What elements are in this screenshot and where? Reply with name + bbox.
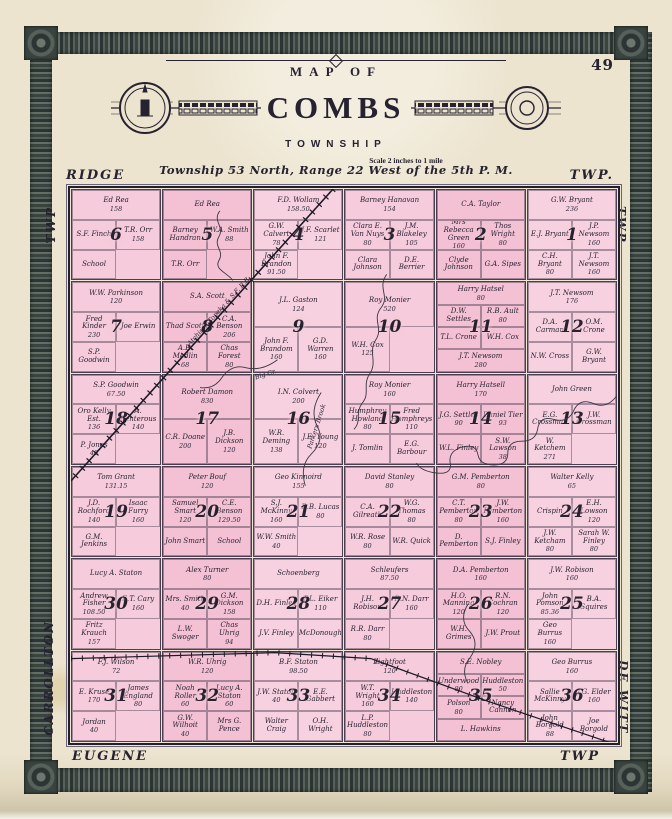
parcel: G.D. Warren160 bbox=[298, 327, 342, 372]
map-section-7[interactable]: W.W. Parkinson120Fred Kinder230Joe Erwin… bbox=[71, 281, 161, 372]
parcel: Geo Burrus160 bbox=[528, 652, 616, 682]
parcel: Thos Wright80 bbox=[481, 220, 525, 250]
parcel: B.F. Staton98.50 bbox=[254, 652, 342, 682]
parcel: John Pomson85.36 bbox=[528, 589, 572, 619]
parcel-group: J.W. Robison160John Pomson85.36B.A. Squi… bbox=[528, 559, 616, 648]
parcel-owner-name: J.T. Newsom bbox=[550, 290, 593, 298]
parcel-acreage: 120 bbox=[179, 517, 191, 524]
map-section-19[interactable]: Tom Grant131.15J.D. Rochford140Isaac Fur… bbox=[71, 466, 161, 557]
parcel-owner-name: C.E. Benson bbox=[209, 500, 249, 515]
parcel: Chas Uhrig94 bbox=[207, 619, 251, 649]
parcel-acreage: 200 bbox=[179, 443, 191, 450]
parcel-owner-name: Mrs G. Pence bbox=[209, 718, 249, 733]
parcel: E.G. Barbour bbox=[390, 434, 434, 464]
parcel-acreage: 160 bbox=[132, 517, 144, 524]
parcel-owner-name: Lucy A. Staton bbox=[90, 570, 142, 578]
parcel-owner-name: Samuel Smart bbox=[165, 500, 205, 515]
parcel: O.M. Crone bbox=[572, 312, 616, 342]
parcel: Humphrey Howland80 bbox=[345, 404, 389, 434]
parcel-owner-name: Geo Burrus bbox=[552, 659, 593, 667]
border-rosette-icon bbox=[24, 760, 58, 794]
parcel-acreage: 80 bbox=[363, 424, 371, 431]
parcel-owner-name: Sallie McKinny bbox=[530, 689, 570, 704]
parcel-owner-name: G.D. Warren bbox=[300, 338, 340, 353]
parcel-owner-name: McDonough bbox=[299, 630, 342, 638]
parcel: R.N. Cochran120 bbox=[481, 589, 525, 619]
parcel-owner-name: Peter Bouf bbox=[188, 474, 226, 482]
parcel: J.W. Ketcham80 bbox=[528, 527, 572, 557]
map-section-18[interactable]: S.P. Goodwin67.50Oro Kelly Est.136A. Ren… bbox=[71, 374, 161, 465]
map-section-30[interactable]: Lucy A. StatonAndrew Fisher108.50E.T. Ca… bbox=[71, 558, 161, 649]
parcel-acreage: 120 bbox=[201, 483, 213, 490]
parcel-owner-name: C.H. Bryant bbox=[530, 253, 570, 268]
map-section-34[interactable]: Lightfoot120W.T. Wright160Huddleston140L… bbox=[344, 651, 434, 742]
parcel-acreage: 160 bbox=[361, 701, 373, 708]
parcel-owner-name: J.W. Pemberton bbox=[483, 500, 523, 515]
parcel-owner-name: Huddleston bbox=[391, 689, 432, 697]
parcel-owner-name: Ed Rea bbox=[103, 197, 128, 205]
parcel-acreage: 105 bbox=[405, 240, 417, 247]
parcel: J.V. Finley bbox=[254, 619, 298, 649]
parcel-owner-name: Nancy Cannon bbox=[483, 700, 523, 715]
map-section-22[interactable]: David Stanley80C.A. GilreathW.G. Thomas8… bbox=[344, 466, 434, 557]
parcel-owner-name: Mrs. Smith bbox=[165, 596, 205, 604]
parcel: C.T. Pemberton80 bbox=[437, 497, 481, 527]
map-section-17[interactable]: Robert Damon830C.R. Doane200J.B. Dickson… bbox=[162, 374, 252, 465]
parcel-owner-name: J.E. Young bbox=[303, 434, 339, 442]
parcel-owner-name: W.H. Cox bbox=[351, 342, 383, 350]
parcel: Joe Erwin bbox=[116, 312, 160, 342]
parcel: O.H. Wright bbox=[298, 711, 342, 741]
parcel: T.R. Orr bbox=[163, 250, 207, 280]
parcel: J. Tomlin bbox=[345, 434, 389, 464]
township-map[interactable]: Ed Rea158S.F. FinchT.R. Orr158School6Ed … bbox=[68, 186, 620, 745]
parcel-owner-name: J.L. Gaston bbox=[279, 297, 317, 305]
parcel-group: Roy Monier160Humphrey Howland80Fred Hump… bbox=[345, 375, 433, 464]
parcel: Barney Hanavan154 bbox=[345, 190, 433, 220]
parcel-owner-name: B.F. Staton bbox=[279, 659, 318, 667]
map-section-16[interactable]: I.N. Colvert200W.R. Deming138J.E. Young1… bbox=[253, 374, 343, 465]
parcel: J.F. Scarlet121 bbox=[298, 220, 342, 250]
parcel-owner-name: Geo Burrus bbox=[530, 622, 570, 637]
parcel-owner-name: School bbox=[82, 261, 106, 269]
parcel-acreage: 206 bbox=[223, 332, 235, 339]
parcel-acreage: 160 bbox=[405, 605, 417, 612]
parcel-owner-name: J.D. Rochford bbox=[74, 500, 114, 515]
map-section-33[interactable]: B.F. Staton98.50J.W. Staton40E.E. Gabber… bbox=[253, 651, 343, 742]
map-section-35[interactable]: S.E. NobleyUnderwood80Huddleston50Polson… bbox=[436, 651, 526, 742]
parcel-owner-name: Fritz Krauch bbox=[74, 622, 114, 637]
parcel-acreage: 80 bbox=[477, 483, 485, 490]
parcel-owner-name: L.W. Swoger bbox=[165, 626, 205, 641]
map-section-12[interactable]: J.T. Newsom176D.A. CarmanO.M. CroneN.W. … bbox=[527, 281, 617, 372]
parcel-acreage: 120 bbox=[497, 609, 509, 616]
parcel-acreage: 80 bbox=[546, 546, 554, 553]
parcel: Thad Scott bbox=[163, 312, 207, 342]
parcel: S.W. Lawson38 bbox=[481, 434, 525, 464]
parcel-group: G.W. Bryant236E.J. BryantJ.P. Newsom160C… bbox=[528, 190, 616, 279]
parcel-owner-name: B.B. Lucas bbox=[302, 504, 340, 512]
parcel: Polson80 bbox=[437, 696, 481, 718]
parcel-group: Roy Monier520W.H. Cox125 bbox=[345, 282, 433, 371]
parcel: Mrs. Smith40 bbox=[163, 589, 207, 619]
parcel-owner-name: Sarah W. Finley bbox=[574, 530, 614, 545]
parcel-owner-name: R.N. Cochran bbox=[483, 593, 523, 608]
parcel-owner-name: Noah Roller bbox=[165, 685, 205, 700]
parcel-owner-name: Huddleston bbox=[482, 678, 523, 686]
parcel-owner-name: Isaac Furry bbox=[118, 500, 158, 515]
parcel-owner-name: J.W. Crossman bbox=[574, 412, 614, 427]
parcel: L. Hawkins bbox=[437, 719, 525, 741]
parcel-acreage: 80 bbox=[134, 701, 142, 708]
parcel-owner-name: Schleufers bbox=[371, 567, 409, 575]
parcel-group: C.A. TaylorMrs Rebecca Green160Thos Wrig… bbox=[437, 190, 525, 279]
parcel-acreage: 80 bbox=[499, 240, 507, 247]
parcel-owner-name: Tom Grant bbox=[97, 474, 135, 482]
map-section-10[interactable]: Roy Monier520W.H. Cox12510 bbox=[344, 281, 434, 372]
parcel-owner-name: B.A. Squires bbox=[574, 596, 614, 611]
parcel-owner-name: J.M. Blakeley bbox=[392, 223, 432, 238]
parcel: Sallie McKinny bbox=[528, 681, 572, 711]
parcel-owner-name: R.R. Darr bbox=[351, 626, 385, 634]
map-section-1[interactable]: G.W. Bryant236E.J. BryantJ.P. Newsom160C… bbox=[527, 189, 617, 280]
parcel-acreage: 40 bbox=[272, 697, 280, 704]
parcel-acreage: 80 bbox=[203, 575, 211, 582]
parcel: J.H. Robison bbox=[345, 589, 389, 619]
parcel-owner-name: D.A. Pemberton bbox=[453, 567, 509, 575]
parcel-acreage: 88 bbox=[546, 731, 554, 738]
parcel: Underwood80 bbox=[437, 674, 481, 696]
parcel-owner-name: D. Pemberton bbox=[439, 534, 479, 549]
parcel: Lucy A. Staton60 bbox=[207, 681, 251, 711]
edge-label-twp-left: TWP bbox=[44, 206, 58, 243]
parcel-acreage: 67.50 bbox=[107, 391, 126, 398]
parcel-owner-name: J.F. Scarlet bbox=[301, 227, 339, 235]
parcel-group: G.M. Pemberton80C.T. Pemberton80J.W. Pem… bbox=[437, 467, 525, 556]
parcel-owner-name: James England bbox=[118, 685, 158, 700]
parcel-acreage: 110 bbox=[405, 424, 417, 431]
map-section-29[interactable]: Alex Turner80Mrs. Smith40G.M. Dickson158… bbox=[162, 558, 252, 649]
parcel-owner-name: S.W. Lawson bbox=[483, 438, 523, 453]
parcel: Walter Craig bbox=[254, 711, 298, 741]
parcel: J.P. Newsom160 bbox=[572, 220, 616, 250]
parcel-owner-name: T.R. Orr bbox=[171, 261, 199, 269]
parcel-group: SchoenbergD.H. FinleyP.L. Eiker110J.V. F… bbox=[254, 559, 342, 648]
parcel: James England80 bbox=[116, 681, 160, 711]
parcel-owner-name: Fred Humphreys bbox=[391, 408, 432, 423]
parcel-acreage: 68 bbox=[181, 362, 189, 369]
parcel-owner-name: W.R. Rose bbox=[350, 534, 385, 542]
parcel-group: D.A. Pemberton160H.O. Manning120R.N. Coc… bbox=[437, 559, 525, 648]
parcel-owner-name: John F. Brandon bbox=[256, 253, 296, 268]
parcel-group: Harry Hatsel80D.W. SettlesR.B. Ault80T.L… bbox=[437, 282, 525, 371]
parcel-acreage: 236 bbox=[566, 206, 578, 213]
map-section-31[interactable]: F.J. Wilson72E. Kruse170James England80J… bbox=[71, 651, 161, 742]
parcel-acreage: 87.50 bbox=[380, 575, 399, 582]
parcel-acreage: 80 bbox=[477, 295, 485, 302]
map-section-6[interactable]: Ed Rea158S.F. FinchT.R. Orr158School6 bbox=[71, 189, 161, 280]
banner-ornament-right-icon bbox=[411, 78, 561, 138]
parcel-owner-name: Alex Turner bbox=[186, 567, 228, 575]
parcel-owner-name: Mrs Rebecca Green bbox=[439, 220, 479, 243]
parcel-acreage: 94 bbox=[225, 639, 233, 646]
edge-label-twp-topright: TWP. bbox=[570, 168, 614, 183]
parcel: Crispin bbox=[528, 497, 572, 527]
parcel-owner-name: E.J. Bryant bbox=[531, 231, 569, 239]
parcel-owner-name: J.V. Finley bbox=[259, 630, 294, 638]
parcel: F.D. Wollam158.50 bbox=[254, 190, 342, 220]
parcel: Clyde Johnson bbox=[437, 250, 481, 280]
parcel: Clara Johnson bbox=[345, 250, 389, 280]
parcel-owner-name: Schoenberg bbox=[277, 570, 320, 578]
parcel-owner-name: Roy Monier bbox=[369, 297, 410, 305]
parcel-owner-name: Crispin bbox=[537, 508, 563, 516]
parcel: Sarah W. Finley80 bbox=[572, 527, 616, 557]
parcel-owner-name: Andrew Fisher bbox=[74, 593, 114, 608]
parcel: C.A. Benson206 bbox=[207, 312, 251, 342]
parcel-group: F.J. Wilson72E. Kruse170James England80J… bbox=[72, 652, 160, 741]
parcel: Jordan40 bbox=[72, 711, 116, 741]
parcel-owner-name: C.A. Gilreath bbox=[347, 504, 387, 519]
parcel: E.J. Bryant bbox=[528, 220, 572, 250]
map-section-23[interactable]: G.M. Pemberton80C.T. Pemberton80J.W. Pem… bbox=[436, 466, 526, 557]
parcel-owner-name: Oro Kelly Est. bbox=[74, 408, 114, 423]
parcel-acreage: 40 bbox=[272, 543, 280, 550]
parcel: Fred Humphreys110 bbox=[390, 404, 434, 434]
parcel: Ed Rea158 bbox=[72, 190, 160, 220]
parcel: John Borgold88 bbox=[528, 711, 572, 741]
parcel: B.B. Lucas80 bbox=[298, 497, 342, 527]
parcel-owner-name: G.W. Calvert bbox=[256, 223, 296, 238]
map-section-13[interactable]: John GreenE.G. CrossmanJ.W. CrossmanW. K… bbox=[527, 374, 617, 465]
parcel-owner-name: S.F. Finch bbox=[77, 231, 112, 239]
parcel-owner-name: John Borgold bbox=[530, 715, 570, 730]
parcel-acreage: 80 bbox=[225, 362, 233, 369]
parcel-group: B.F. Staton98.50J.W. Staton40E.E. Gabber… bbox=[254, 652, 342, 741]
map-section-21[interactable]: Geo Kinnoird155S.J. McKinny160B.B. Lucas… bbox=[253, 466, 343, 557]
map-section-25[interactable]: J.W. Robison160John Pomson85.36B.A. Squi… bbox=[527, 558, 617, 649]
parcel-acreage: 88 bbox=[225, 236, 233, 243]
map-section-36[interactable]: Geo Burrus160Sallie McKinnyJ.G. Elder160… bbox=[527, 651, 617, 742]
parcel-acreage: 80 bbox=[363, 731, 371, 738]
parcel: J.W. Prout bbox=[481, 619, 525, 649]
parcel-owner-name: Barney Hanavan bbox=[360, 197, 419, 205]
parcel-group: I.N. Colvert200W.R. Deming138J.E. Young1… bbox=[254, 375, 342, 464]
parcel-acreage: 85.36 bbox=[541, 609, 560, 616]
parcel: D.A. Pemberton160 bbox=[437, 559, 525, 589]
parcel-owner-name: O.H. Wright bbox=[300, 718, 340, 733]
parcel-owner-name: D.A. Carman bbox=[530, 319, 570, 334]
map-section-11[interactable]: Harry Hatsel80D.W. SettlesR.B. Ault80T.L… bbox=[436, 281, 526, 372]
parcel-acreage: 80 bbox=[407, 517, 415, 524]
map-section-32[interactable]: W.R. Uhrig120Noah Roller60Lucy A. Staton… bbox=[162, 651, 252, 742]
parcel-group: S.P. Goodwin67.50Oro Kelly Est.136A. Ren… bbox=[72, 375, 160, 464]
parcel-group: Walter Kelly65CrispinE.H. Lowson120J.W. … bbox=[528, 467, 616, 556]
parcel-owner-name: Fred Kinder bbox=[74, 316, 114, 331]
parcel: W.T. Wright160 bbox=[345, 681, 389, 711]
parcel-acreage: 155 bbox=[292, 483, 304, 490]
parcel: E.G. Crossman bbox=[528, 404, 572, 434]
parcel-owner-name: S.P. Goodwin bbox=[74, 349, 114, 364]
parcel: Chas Forest80 bbox=[207, 342, 251, 372]
parcel-group: J.L. Gaston124John F. Brandom160G.D. War… bbox=[254, 282, 342, 371]
map-section-3[interactable]: Barney Hanavan154Clara E. Van Nuys80J.M.… bbox=[344, 189, 434, 280]
parcel-group: Ed Rea158S.F. FinchT.R. Orr158School bbox=[72, 190, 160, 279]
parcel-acreage: 120 bbox=[223, 447, 235, 454]
parcel: J.G. Elder160 bbox=[572, 681, 616, 711]
parcel-owner-name: David Stanley bbox=[365, 474, 414, 482]
map-section-26[interactable]: D.A. Pemberton160H.O. Manning120R.N. Coc… bbox=[436, 558, 526, 649]
parcel-acreage: 40 bbox=[181, 731, 189, 738]
border-band-bottom bbox=[30, 768, 642, 792]
parcel-acreage: 160 bbox=[270, 354, 282, 361]
border-band-top bbox=[30, 32, 642, 54]
map-section-8[interactable]: S.A. ScottThad ScottC.A. Benson206A.B. M… bbox=[162, 281, 252, 372]
parcel-owner-name: L.P. Huddleston bbox=[347, 715, 388, 730]
parcel-group: J.T. Newsom176D.A. CarmanO.M. CroneN.W. … bbox=[528, 282, 616, 371]
map-section-14[interactable]: Harry Hatsell170J.G. Settles90Daniel Tie… bbox=[436, 374, 526, 465]
map-section-20[interactable]: Peter Bouf120Samuel Smart120C.E. Benson1… bbox=[162, 466, 252, 557]
parcel-acreage: 110 bbox=[314, 605, 326, 612]
parcel-acreage: 129.50 bbox=[218, 517, 241, 524]
parcel: Huddleston140 bbox=[390, 681, 434, 711]
parcel-group: S.A. ScottThad ScottC.A. Benson206A.B. M… bbox=[163, 282, 251, 371]
parcel-group: Tom Grant131.15J.D. Rochford140Isaac Fur… bbox=[72, 467, 160, 556]
parcel-owner-name: John Pomson bbox=[530, 593, 570, 608]
parcel: D.W. Settles bbox=[437, 305, 481, 327]
parcel-acreage: 65 bbox=[568, 483, 576, 490]
parcel-owner-name: J.H. Robison bbox=[347, 596, 387, 611]
parcel: J.D. Rochford140 bbox=[72, 497, 116, 527]
parcel: W.G. Thomas80 bbox=[390, 497, 434, 527]
parcel-acreage: 200 bbox=[292, 398, 304, 405]
map-section-15[interactable]: Roy Monier160Humphrey Howland80Fred Hump… bbox=[344, 374, 434, 465]
parcel: W. Ketchem271 bbox=[528, 434, 572, 464]
parcel: W.W. Parkinson120 bbox=[72, 282, 160, 312]
parcel: D.H. Finley bbox=[254, 589, 298, 619]
parcel: S.F. Finch bbox=[72, 220, 116, 250]
parcel: Schleufers87.50 bbox=[345, 559, 433, 589]
parcel-owner-name: I.N. Colvert bbox=[278, 389, 319, 397]
parcel-group: Lucy A. StatonAndrew Fisher108.50E.T. Ca… bbox=[72, 559, 160, 648]
map-section-9[interactable]: J.L. Gaston124John F. Brandom160G.D. War… bbox=[253, 281, 343, 372]
parcel-owner-name: Ed Rea bbox=[195, 201, 220, 209]
parcel-owner-name: S.P. Goodwin bbox=[93, 382, 139, 390]
township-name: COMBS bbox=[267, 90, 406, 126]
parcel: Peter Bouf120 bbox=[163, 467, 251, 497]
parcel-acreage: 280 bbox=[475, 362, 487, 369]
parcel-owner-name: School bbox=[217, 538, 241, 546]
parcel-owner-name: Daniel Tier bbox=[483, 412, 523, 420]
parcel-owner-name: Lightfoot bbox=[373, 659, 406, 667]
parcel-acreage: 120 bbox=[452, 609, 464, 616]
parcel: J.L. Gaston124 bbox=[254, 282, 342, 327]
parcel-owner-name: J. Tomlin bbox=[352, 445, 383, 453]
parcel: W.R. Uhrig120 bbox=[163, 652, 251, 682]
parcel: B.A. Squires bbox=[572, 589, 616, 619]
parcel-owner-name: Chas Uhrig bbox=[209, 622, 249, 637]
parcel-acreage: 160 bbox=[314, 354, 326, 361]
parcel: Walter Kelly65 bbox=[528, 467, 616, 497]
map-section-2[interactable]: C.A. TaylorMrs Rebecca Green160Thos Wrig… bbox=[436, 189, 526, 280]
parcel: Isaac Furry160 bbox=[116, 497, 160, 527]
map-section-27[interactable]: Schleufers87.50J.H. RobisonR.N. Darr160R… bbox=[344, 558, 434, 649]
parcel-acreage: 158 bbox=[132, 236, 144, 243]
parcel: E.H. Lowson120 bbox=[572, 497, 616, 527]
parcel-owner-name: J.W. Prout bbox=[486, 630, 521, 638]
parcel-acreage: 121 bbox=[314, 236, 326, 243]
parcel-owner-name: Geo Kinnoird bbox=[275, 474, 322, 482]
parcel: W.R. Rose80 bbox=[345, 527, 389, 557]
parcel: S.J. Finley bbox=[481, 527, 525, 557]
parcel: D.A. Carman bbox=[528, 312, 572, 342]
ornament-line bbox=[166, 60, 506, 61]
parcel: John Smart bbox=[163, 527, 207, 557]
parcel-acreage: 90 bbox=[455, 420, 463, 427]
parcel-acreage: 136 bbox=[88, 424, 100, 431]
parcel: Daniel Tier93 bbox=[481, 404, 525, 434]
parcel: T.R. Orr158 bbox=[116, 220, 160, 250]
parcel: Geo Burrus160 bbox=[528, 619, 572, 649]
parcel-owner-name: G.W. Bryant bbox=[551, 197, 593, 205]
parcel-acreage: 38 bbox=[499, 454, 507, 461]
parcel: McDonough bbox=[298, 619, 342, 649]
parcel-owner-name: R.N. Darr bbox=[395, 596, 429, 604]
parcel: W.H. Cox bbox=[481, 327, 525, 349]
parcel: J.M. Blakeley105 bbox=[390, 220, 434, 250]
parcel: C.E. Benson129.50 bbox=[207, 497, 251, 527]
parcel-owner-name: J.W. Ketcham bbox=[530, 530, 570, 545]
page-number: 49 bbox=[591, 56, 614, 74]
parcel-acreage: 170 bbox=[88, 697, 100, 704]
parcel: C.H. Bryant80 bbox=[528, 250, 572, 280]
parcel-acreage: 91.50 bbox=[267, 269, 286, 276]
parcel-owner-name: W.H. Grimes bbox=[439, 626, 479, 641]
map-section-28[interactable]: SchoenbergD.H. FinleyP.L. Eiker110J.V. F… bbox=[253, 558, 343, 649]
map-section-4[interactable]: F.D. Wollam158.50G.W. Calvert78J.F. Scar… bbox=[253, 189, 343, 280]
parcel: W.R. Quick bbox=[390, 527, 434, 557]
parcel: Ed Rea bbox=[163, 190, 251, 220]
parcel-acreage: 50 bbox=[499, 686, 507, 693]
parcel: Nancy Cannon bbox=[481, 696, 525, 718]
title-township-word: TOWNSHIP bbox=[96, 139, 576, 150]
map-section-5[interactable]: Ed ReaBarney HandranW.A. Smith88T.R. Orr… bbox=[162, 189, 252, 280]
parcel-acreage: 80 bbox=[546, 269, 554, 276]
parcel: Roy Monier160 bbox=[345, 375, 433, 405]
parcel-acreage: 98.50 bbox=[289, 668, 308, 675]
parcel: A. Renterous140 bbox=[116, 404, 160, 434]
map-section-24[interactable]: Walter Kelly65CrispinE.H. Lowson120J.W. … bbox=[527, 466, 617, 557]
parcel-acreage: 60 bbox=[225, 701, 233, 708]
parcel-owner-name: Clyde Johnson bbox=[439, 257, 479, 272]
parcel: John F. Brandon91.50 bbox=[254, 250, 298, 280]
parcel: G.W. Bryant bbox=[572, 342, 616, 372]
parcel-acreage: 830 bbox=[201, 398, 213, 405]
parcel-owner-name: C.R. Doane bbox=[165, 434, 205, 442]
edge-label-twp-bottomright: TWP bbox=[560, 749, 600, 764]
parcel-group: Schleufers87.50J.H. RobisonR.N. Darr160R… bbox=[345, 559, 433, 648]
parcel-group: Harry Hatsell170J.G. Settles90Daniel Tie… bbox=[437, 375, 525, 464]
parcel-owner-name: W.R. Deming bbox=[256, 430, 296, 445]
parcel-acreage: 157 bbox=[88, 639, 100, 646]
parcel: E.E. Gabbert bbox=[298, 681, 342, 711]
parcel-acreage: 271 bbox=[544, 454, 556, 461]
edge-label-eugene: EUGENE bbox=[72, 749, 148, 764]
parcel: T.L. Crone bbox=[437, 327, 481, 349]
parcel-group: Robert Damon830C.R. Doane200J.B. Dickson… bbox=[163, 375, 251, 464]
parcel-acreage: 120 bbox=[383, 668, 395, 675]
parcel: School bbox=[72, 250, 116, 280]
